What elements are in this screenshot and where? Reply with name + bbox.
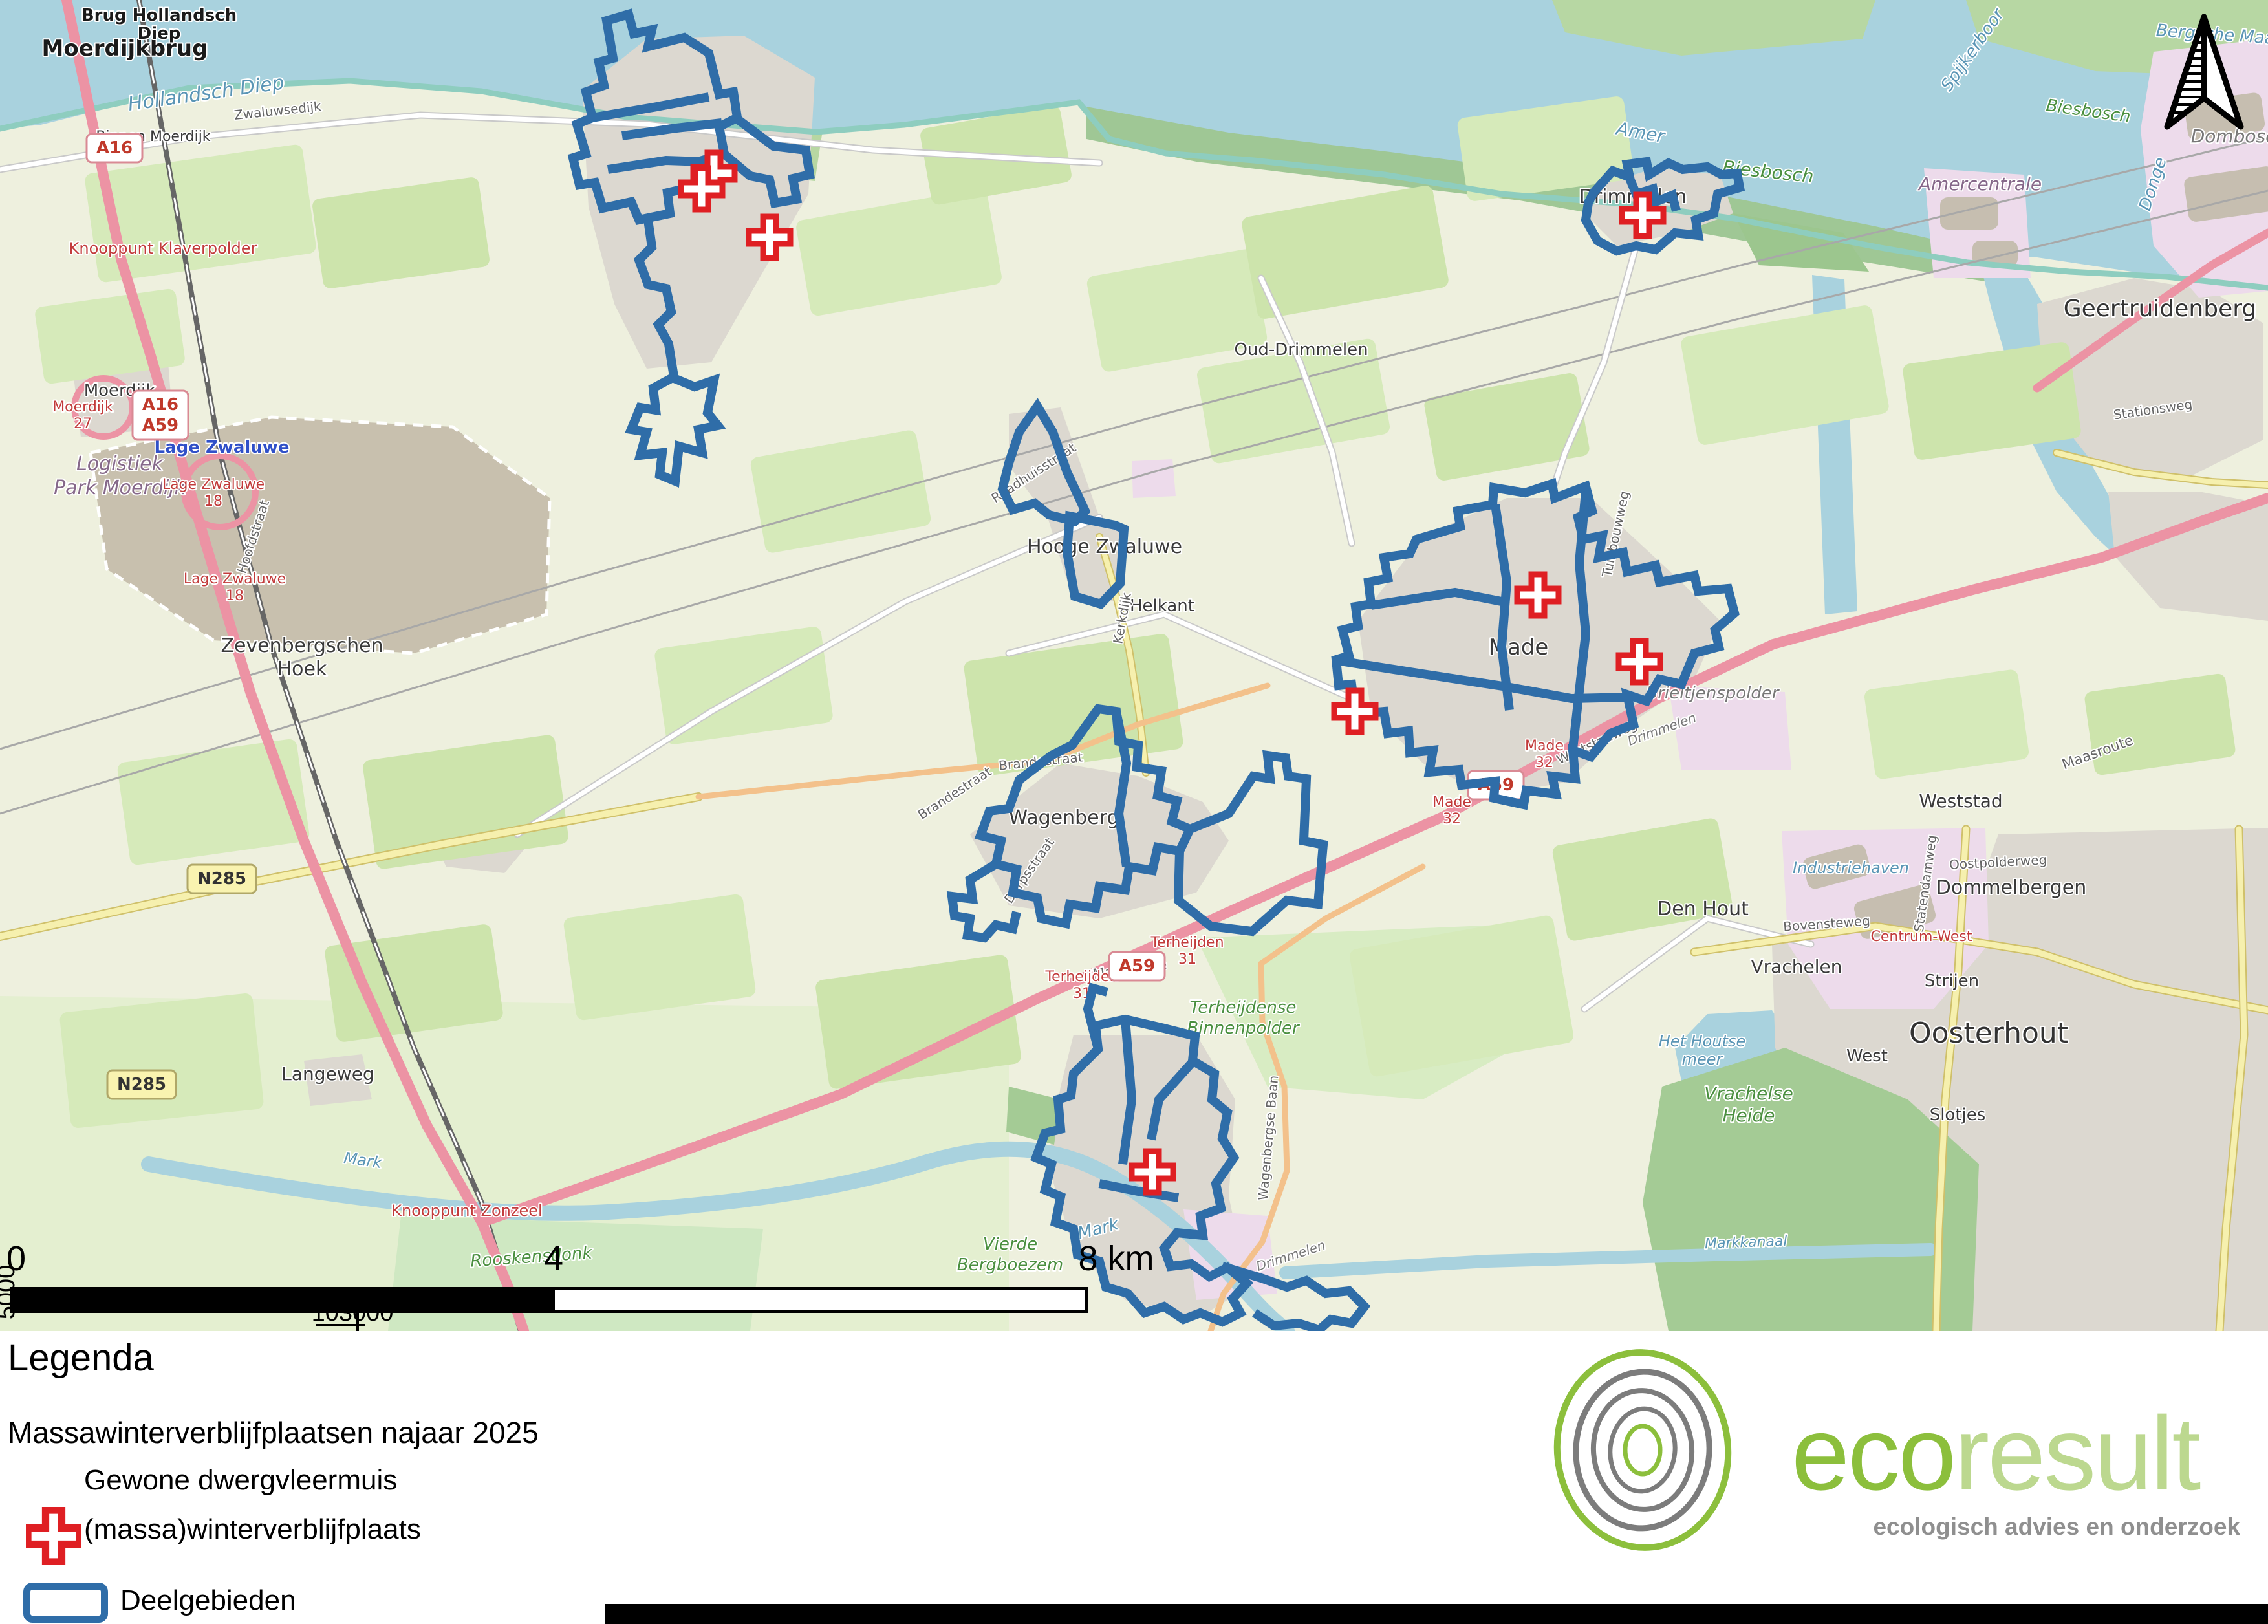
map-label: Knooppunt Klaverpolder	[69, 239, 257, 257]
map-label: 18	[226, 588, 244, 604]
logo-result: result	[1954, 1395, 2199, 1512]
map-label: Moerdijk	[52, 399, 113, 415]
map-label: Markkanaal	[1705, 1233, 1787, 1252]
map-label: Vrachelen	[1751, 956, 1842, 977]
map-label: Terheijden	[1150, 935, 1224, 951]
map-label: 27	[74, 416, 92, 432]
logo-ring	[1606, 1405, 1679, 1495]
map-label: Vrachelse	[1704, 1083, 1793, 1104]
road-shield-a16-a59: A16A59	[133, 391, 188, 440]
grid-label-bottom: 103000	[312, 1299, 394, 1326]
map-label: Industriehaven	[1793, 859, 1909, 877]
road-shield-a16: A16	[87, 134, 142, 162]
map-label: 32	[1535, 755, 1553, 771]
ecoresult-logo-text: ecoresult	[1791, 1402, 2199, 1506]
map-svg: MoerdijkbrugBrug HollandschDiepBinnen Mo…	[0, 0, 2268, 1331]
map-label: Made	[1432, 794, 1471, 810]
shield-text: A16	[142, 395, 178, 415]
scalebar-label: 4	[544, 1239, 563, 1278]
map-label: Brug Hollandsch	[81, 6, 237, 25]
legend-title: Legenda	[8, 1336, 154, 1380]
shield-text: N285	[117, 1075, 166, 1094]
map-label: Terheijdense	[1190, 998, 1297, 1017]
legend-group-label: Massawinterverblijfplaatsen najaar 2025	[8, 1415, 539, 1450]
map-label: Hooge Zwaluwe	[1027, 536, 1182, 558]
map-label: Weststad	[1919, 790, 2002, 812]
legend-species-label: Gewone dwergvleermuis	[84, 1464, 397, 1497]
map-label: Dombosch	[2191, 125, 2268, 147]
map-label: Den Hout	[1657, 898, 1749, 920]
map-label: Terheijden	[1044, 969, 1118, 985]
map-label: Binnenpolder	[1187, 1019, 1301, 1038]
logo-ring	[1590, 1387, 1696, 1513]
ecoresult-tagline: ecologisch advies en onderzoek	[1791, 1513, 2240, 1541]
map-label: Bergboezem	[957, 1255, 1063, 1275]
deelgebieden-swatch-icon	[23, 1583, 108, 1623]
map-label: meer	[1682, 1050, 1724, 1068]
road-shield-n285: N285	[188, 865, 256, 893]
scalebar-black-segment	[12, 1288, 554, 1312]
legend-area-label: Deelgebieden	[120, 1585, 296, 1617]
scalebar-label: 8 km	[1078, 1239, 1154, 1278]
map-label: Dommelbergen	[1936, 876, 2087, 899]
scalebar-white-segment	[554, 1288, 1086, 1312]
footer-black-bar	[605, 1604, 2268, 1624]
map-label: West	[1846, 1046, 1888, 1066]
shield-text: A59	[142, 416, 178, 435]
field-patch	[1940, 197, 1998, 230]
winter-cross-icon	[26, 1507, 81, 1565]
industrial-hooge-zwaluwe	[1132, 459, 1176, 498]
map-label: Strijen	[1925, 971, 1979, 991]
grid-label-left: 5000	[0, 1265, 20, 1320]
map-label: Logistiek	[76, 453, 164, 475]
map-label: Moerdijkbrug	[42, 36, 208, 61]
map-label: Heide	[1722, 1105, 1775, 1126]
map-label: Het Houtse	[1659, 1032, 1745, 1050]
map-label: Helkant	[1130, 596, 1194, 616]
shield-text: N285	[197, 869, 246, 889]
map-label: Slotjes	[1930, 1105, 1986, 1125]
marsh-rooskensdonk	[388, 1216, 763, 1331]
shield-text: A59	[1119, 957, 1155, 976]
shield-text: A16	[96, 138, 133, 158]
map-label: Diep	[138, 24, 181, 43]
logo-eco: eco	[1791, 1395, 1954, 1512]
map: MoerdijkbrugBrug HollandschDiepBinnen Mo…	[0, 0, 2268, 1331]
map-label: Zevenbergschen	[221, 634, 383, 657]
map-label: 32	[1443, 811, 1461, 827]
map-label: Made	[1525, 738, 1564, 754]
map-label: Wagenberg	[1009, 807, 1119, 829]
legend-cross-label: (massa)winterverblijfplaats	[84, 1513, 421, 1546]
map-label: Amercentrale	[1917, 173, 2042, 195]
legend-cross-glyph	[28, 1510, 80, 1562]
field-patch	[59, 993, 264, 1129]
map-label: Vierde	[983, 1235, 1037, 1254]
map-label: Lage Zwaluwe	[184, 571, 286, 587]
map-label: Hoek	[277, 658, 327, 680]
map-label: 18	[204, 493, 222, 510]
road-shield-a59: A59	[1109, 952, 1165, 980]
ecoresult-logo-rings-icon	[1549, 1345, 1736, 1555]
map-label: Oud-Drimmelen	[1234, 340, 1368, 360]
map-label: Lage Zwaluwe	[162, 477, 265, 493]
page: { "colors":{ "land":"#eef0de","water":"#…	[0, 0, 2268, 1624]
map-label: Geertruidenberg	[2064, 296, 2257, 322]
road-shield-n285: N285	[107, 1070, 176, 1099]
map-label: 31	[1178, 951, 1196, 968]
map-label: Oosterhout	[1909, 1017, 2068, 1050]
map-label: Knooppunt Zonzeel	[391, 1202, 542, 1220]
logo-ring	[1625, 1426, 1660, 1474]
map-label: Langeweg	[281, 1063, 374, 1085]
map-label: Centrum-West	[1870, 929, 1972, 945]
map-label: Brieltjenspolder	[1646, 684, 1780, 703]
